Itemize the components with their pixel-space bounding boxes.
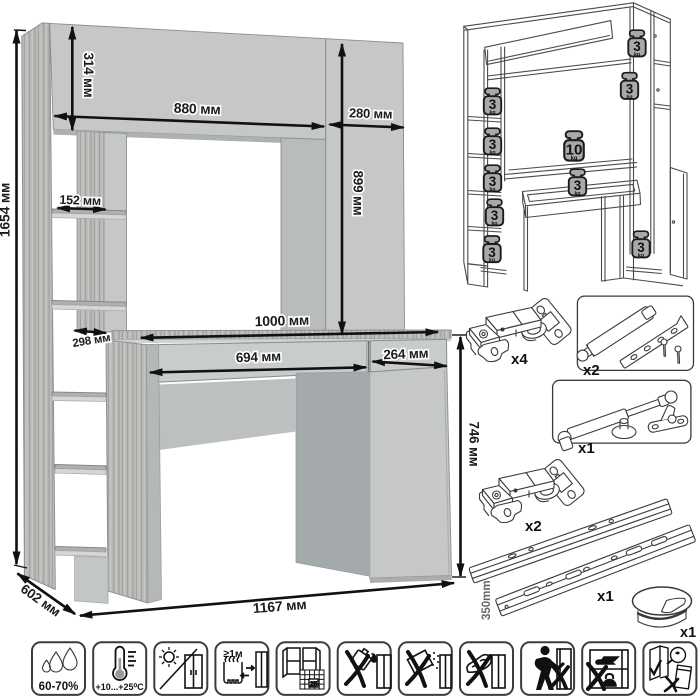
svg-text:kg: kg bbox=[574, 191, 580, 197]
svg-text:280 мм: 280 мм bbox=[349, 105, 393, 122]
svg-text:x4: x4 bbox=[511, 351, 528, 368]
svg-text:25: 25 bbox=[310, 681, 318, 688]
svg-text:kg: kg bbox=[634, 52, 640, 58]
svg-text:264 мм: 264 мм bbox=[383, 346, 429, 363]
svg-text:314 мм: 314 мм bbox=[81, 52, 96, 97]
svg-text:899 мм: 899 мм bbox=[351, 170, 366, 215]
svg-text:kg: kg bbox=[491, 221, 497, 227]
svg-text:1167 мм: 1167 мм bbox=[252, 596, 307, 616]
svg-text:+10...+25⁰C: +10...+25⁰C bbox=[96, 682, 145, 692]
svg-text:x2: x2 bbox=[525, 518, 542, 535]
svg-text:694 мм: 694 мм bbox=[236, 349, 282, 366]
svg-text:kg: kg bbox=[489, 110, 495, 116]
svg-text:kg: kg bbox=[489, 187, 495, 193]
svg-text:kg: kg bbox=[489, 150, 495, 156]
svg-text:kg: kg bbox=[489, 258, 495, 264]
svg-text:60-70%: 60-70% bbox=[39, 681, 79, 693]
svg-text:1654 мм: 1654 мм bbox=[0, 183, 13, 237]
svg-text:kg: kg bbox=[626, 94, 632, 100]
svg-text:152 мм: 152 мм bbox=[59, 193, 101, 208]
svg-text:x2: x2 bbox=[583, 362, 600, 379]
svg-text:1000 мм: 1000 мм bbox=[254, 312, 309, 329]
svg-text:x1: x1 bbox=[578, 440, 595, 457]
svg-text:x1: x1 bbox=[680, 625, 696, 641]
svg-text:kg: kg bbox=[638, 253, 644, 259]
svg-text:kg: kg bbox=[571, 156, 578, 162]
svg-text:x1: x1 bbox=[597, 588, 614, 605]
svg-text:746 мм: 746 мм bbox=[467, 421, 482, 466]
svg-text:880 мм: 880 мм bbox=[174, 100, 221, 118]
svg-text:298 мм: 298 мм bbox=[72, 332, 112, 350]
svg-text:350mm: 350mm bbox=[481, 580, 493, 620]
